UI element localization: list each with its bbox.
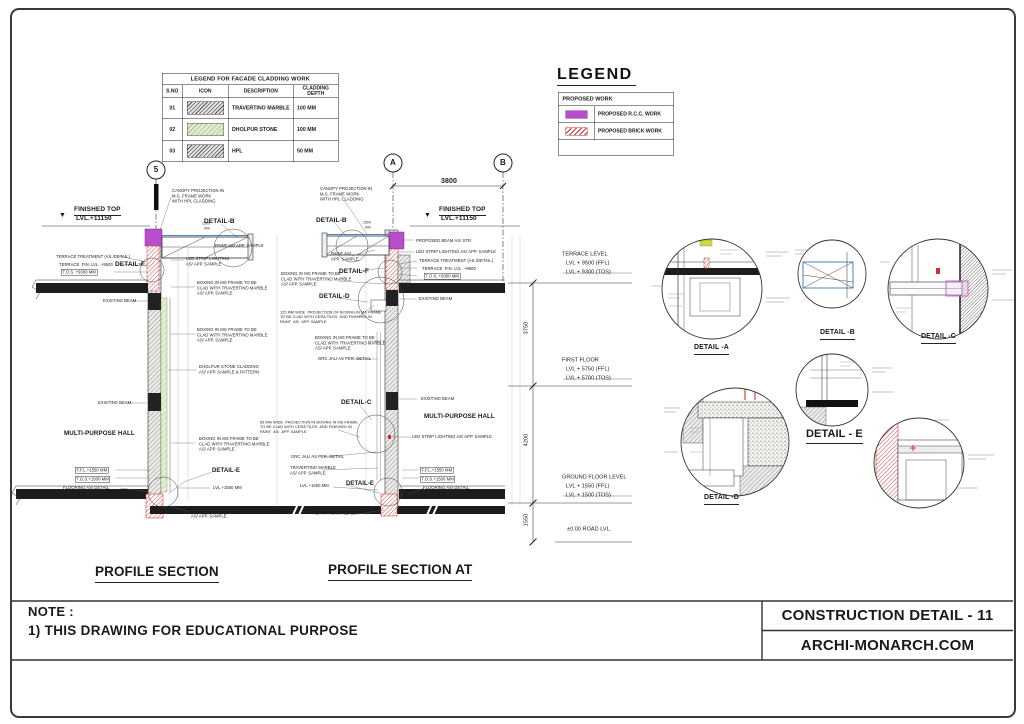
annotation: PAINT AS/ APP. SAMPLE	[331, 251, 359, 262]
annotation: DETAIL - E	[806, 428, 863, 444]
annotation: LVL.+1500 MM	[213, 485, 242, 490]
work-legend-item: PROPOSED BRICK WORK	[559, 123, 674, 140]
annotation: LVL.+11150	[441, 215, 477, 223]
annotation: T.O.S. +9300 MM	[424, 273, 460, 279]
annotation: CANOPY PROJECTION IN M.S. FRAME WORK WIT…	[320, 186, 372, 202]
annotation: EXISTING BEAM	[98, 400, 131, 405]
annotation: DETAIL -A	[694, 344, 729, 355]
annotation: DETAIL-D	[319, 293, 350, 301]
cladding-legend-header: S.NO	[162, 85, 182, 98]
rcc-swatch-icon	[566, 110, 588, 118]
annotation: ▼	[59, 212, 66, 221]
annotation: DETAIL -C	[921, 333, 956, 344]
annotation: EXISTING BEAM	[421, 396, 454, 401]
cladding-legend-header: CLADDING DEPTH	[293, 85, 338, 98]
annotation: LED STRIP LIGHTING AS/ APP. SAMPLE	[412, 434, 492, 439]
cladding-legend: LEGEND FOR FACADE CLADDING WORK S.NOICON…	[162, 73, 340, 160]
sheet-website: ARCHI-MONARCH.COM	[762, 630, 1013, 660]
cladding-legend-header: DESCRIPTION	[228, 85, 293, 98]
work-legend: PROPOSED WORK PROPOSED R.C.C. WORKPROPOS…	[558, 92, 674, 159]
annotation: BOXING IN MS FRAME TO BE CLAD WITH TRAVE…	[281, 271, 351, 287]
cladding-legend-row: 02DHOLPUR STONE100 MM	[162, 119, 338, 141]
work-legend-item-label: PROPOSED BRICK WORK	[595, 123, 674, 140]
annotation: GRC JALI AS PER DETAIL	[291, 454, 344, 459]
note-text: 1) THIS DRAWING FOR EDUCATIONAL PURPOSE	[28, 623, 358, 638]
annotation: FINISHED TOP	[439, 206, 486, 216]
annotation: F.F.L.+1550 MM	[75, 467, 109, 473]
work-legend-item: PROPOSED R.C.C. WORK	[559, 106, 674, 123]
annotation: DETAIL-B	[204, 218, 235, 226]
annotation: BOXING IN MS FRAME TO BE CLAD WITH TRAVE…	[315, 335, 385, 351]
annotation: T.O.S. +9300 MM	[61, 269, 97, 275]
annotation: 125 MM WIDE PROJECTION OF BOXING IN MS F…	[280, 310, 382, 324]
annotation: T.O.S.+1500 MM	[75, 476, 110, 482]
annotation: LED STRIP LIGHTING AS/ APP. SAMPLE	[186, 256, 229, 267]
cladding-legend-title: LEGEND FOR FACADE CLADDING WORK	[162, 73, 338, 85]
cladding-legend-table: LEGEND FOR FACADE CLADDING WORK S.NOICON…	[162, 73, 339, 162]
annotation: LVL + 1500 (TOS)	[566, 492, 611, 499]
hpl-hatch-icon	[187, 145, 224, 158]
annotation: EXISTING BEAM	[103, 298, 136, 303]
annotation: 1500	[363, 221, 371, 225]
annotation: DHOLPUR STONE CLADDING AS/ APP. SAMPLE &…	[199, 364, 259, 375]
annotation: PROPOSED BEAM AS/ STR.	[416, 238, 472, 243]
sheet-title: CONSTRUCTION DETAIL - 11	[762, 601, 1013, 630]
annotation: DETAIL-B	[316, 217, 347, 225]
annotation: TRAVERTINO MARBLE AS/ APP. SAMPLE	[290, 465, 336, 476]
drawing-sheet: 5ABFINISHED TOPLVL.+11150▼CANOPY PROJECT…	[0, 0, 1024, 724]
annotation: TERRACE LEVEL	[562, 251, 608, 258]
annotation: 900	[204, 227, 210, 231]
annotation: TERRACE FIN. LVL. +9500	[59, 262, 113, 267]
level-lines	[508, 273, 632, 546]
micro-annotations	[652, 250, 1014, 488]
middle-profile-section	[322, 154, 520, 516]
brick-swatch-icon	[566, 127, 588, 135]
annotation: F.F.L.+1550 MM	[420, 467, 454, 473]
annotation: TERRACE TREATMENT (AS./DETAIL)	[56, 254, 130, 259]
annotation: DETAIL-C	[341, 399, 372, 407]
annotation: 5	[154, 165, 159, 175]
annotation: BOXING IN MS FRAME TO BE CLAD WITH TRAVE…	[197, 327, 267, 343]
annotation: T.O.S.+1500 MM	[420, 476, 455, 482]
annotation: DETAIL -B	[820, 329, 855, 340]
detail-circles	[652, 239, 1014, 510]
dholpur-hatch-icon	[187, 123, 224, 136]
annotation: TERRACE TREATMENT (AS./DETAIL)	[419, 258, 493, 263]
travertino-hatch-icon	[187, 102, 224, 115]
left-profile-section	[12, 161, 505, 518]
annotation: ▼	[424, 212, 431, 221]
annotation: LVL + 9500 (FFL)	[566, 260, 609, 267]
annotation: FINISHED TOP	[74, 206, 121, 216]
annotation: LVL + 9300 (TOS)	[566, 269, 611, 276]
annotation: LVL.+11150	[76, 215, 112, 223]
cladding-legend-header: ICON	[182, 85, 228, 98]
annotation: DETAIL-E	[346, 481, 374, 489]
work-legend-header: PROPOSED WORK	[559, 93, 674, 107]
annotation: 900	[365, 226, 371, 230]
annotation: MULTI-PURPOSE HALL	[424, 413, 495, 421]
annotation: 1550	[524, 514, 531, 527]
annotation: TERRACE FIN. LVL. +9500	[422, 266, 476, 271]
annotation: DETAIL-F	[339, 268, 369, 276]
annotation: LED STRIP LIGHTING AS/ APP. SAMPLE	[416, 249, 496, 254]
annotation: CANOPY PROJECTION IN M.S. FRAME WORK WIT…	[172, 188, 224, 204]
annotation: DETAIL-F	[115, 261, 145, 269]
annotation: LVL + 1550 (FFL)	[566, 483, 609, 490]
annotation: PAINT AS/ APP. SAMPLE	[215, 243, 264, 248]
annotation: 65 MM WIDE PROJECTION IN BOXING IN MS FR…	[260, 420, 358, 434]
annotation: PROFILE SECTION AT	[328, 562, 472, 581]
annotation: TRAVERTINO MARBLE AS/ APP. SAMPLE	[313, 505, 359, 516]
cladding-legend-header-row: S.NOICONDESCRIPTIONCLADDING DEPTH	[162, 85, 338, 98]
annotation: A	[390, 158, 396, 168]
work-legend-title: LEGEND	[557, 66, 636, 86]
annotation: DETAIL -D	[704, 494, 739, 505]
work-legend-item-label: PROPOSED R.C.C. WORK	[595, 106, 674, 123]
annotation: FIRST FLOOR	[562, 357, 599, 364]
annotation: FLOORING AS/ DETAIL	[63, 485, 109, 490]
annotation: 3750	[524, 322, 531, 335]
annotation: 3800	[441, 178, 457, 187]
annotation: B	[500, 158, 506, 168]
annotation: LVL + 5750 (FFL)	[566, 366, 609, 373]
annotation: TRAVERTINO MARBLE AS/ APP. SAMPLE	[191, 508, 237, 519]
annotation: GROUND FLOOR LEVEL	[562, 474, 626, 481]
annotation: LVL.+1500 MM	[300, 483, 329, 488]
annotation: GRC JALI AS PER DETAIL	[318, 356, 371, 361]
annotation: FLOORING AS/ DETAIL	[423, 485, 469, 490]
annotation: DETAIL-E	[212, 468, 240, 476]
work-legend-empty-row	[559, 140, 674, 155]
annotation: ±0.00 ROAD LVL.	[567, 526, 611, 533]
annotation: EXISTING BEAM	[419, 296, 452, 301]
annotation: PROFILE SECTION	[95, 564, 219, 583]
cladding-legend-row: 01TRAVERTINO MARBLE100 MM	[162, 97, 338, 119]
note-label: NOTE :	[28, 604, 74, 619]
annotation: BOXING IN MS FRAME TO BE CLAD WITH TRAVE…	[197, 280, 267, 296]
cladding-legend-row: 03HPL50 MM	[162, 140, 338, 162]
annotation: LVL + 5700 (TOS)	[566, 375, 611, 382]
annotation: 4200	[524, 434, 531, 447]
annotation: 1500	[202, 222, 210, 226]
annotation: MULTI-PURPOSE HALL	[64, 430, 135, 438]
annotation: BOXING IN MS FRAME TO BE CLAD WITH TRAVE…	[199, 436, 269, 452]
